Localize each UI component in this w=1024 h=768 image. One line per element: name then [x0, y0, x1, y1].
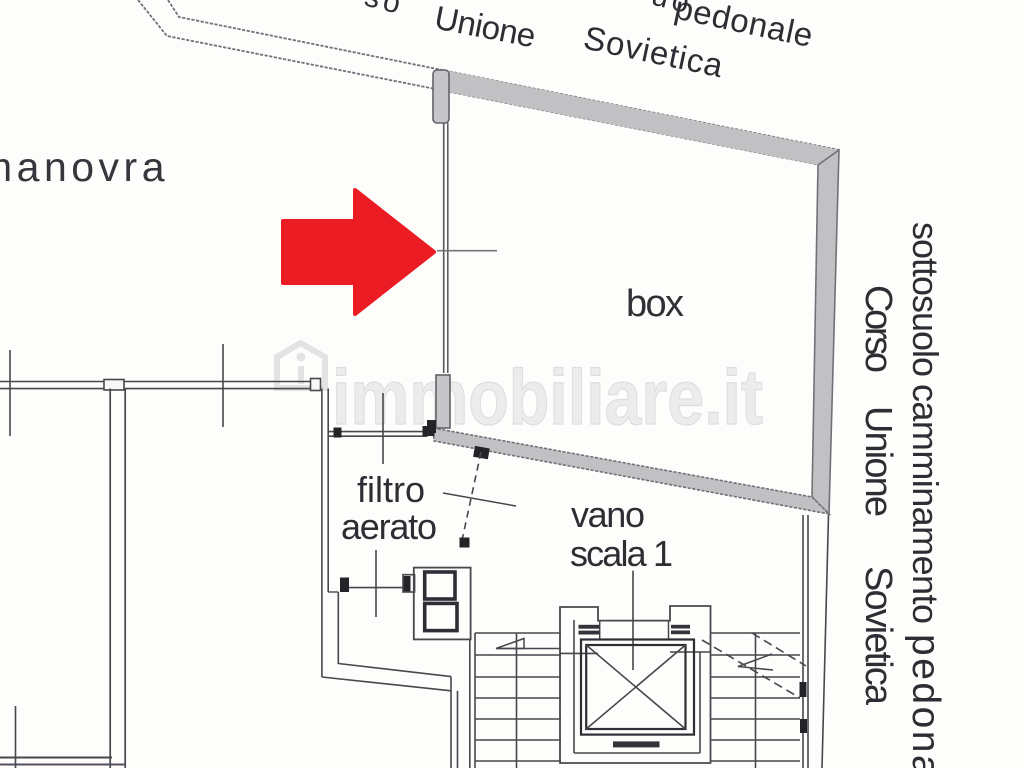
svg-text:camminamento: camminamento: [905, 384, 946, 624]
svg-text:manovra: manovra: [0, 144, 169, 190]
svg-text:Corso: Corso: [857, 285, 899, 373]
svg-text:Sovietica: Sovietica: [857, 566, 899, 706]
svg-text:vano: vano: [571, 494, 645, 535]
svg-text:immobiliare.it: immobiliare.it: [332, 354, 763, 441]
svg-text:scala 1: scala 1: [570, 533, 673, 574]
svg-text:pedonale: pedonale: [904, 634, 947, 768]
svg-text:filtro: filtro: [357, 469, 425, 510]
svg-text:sottosuolo: sottosuolo: [905, 222, 946, 377]
svg-text:box: box: [626, 283, 685, 325]
svg-text:aerato: aerato: [341, 506, 437, 547]
svg-text:Unione: Unione: [857, 406, 899, 517]
